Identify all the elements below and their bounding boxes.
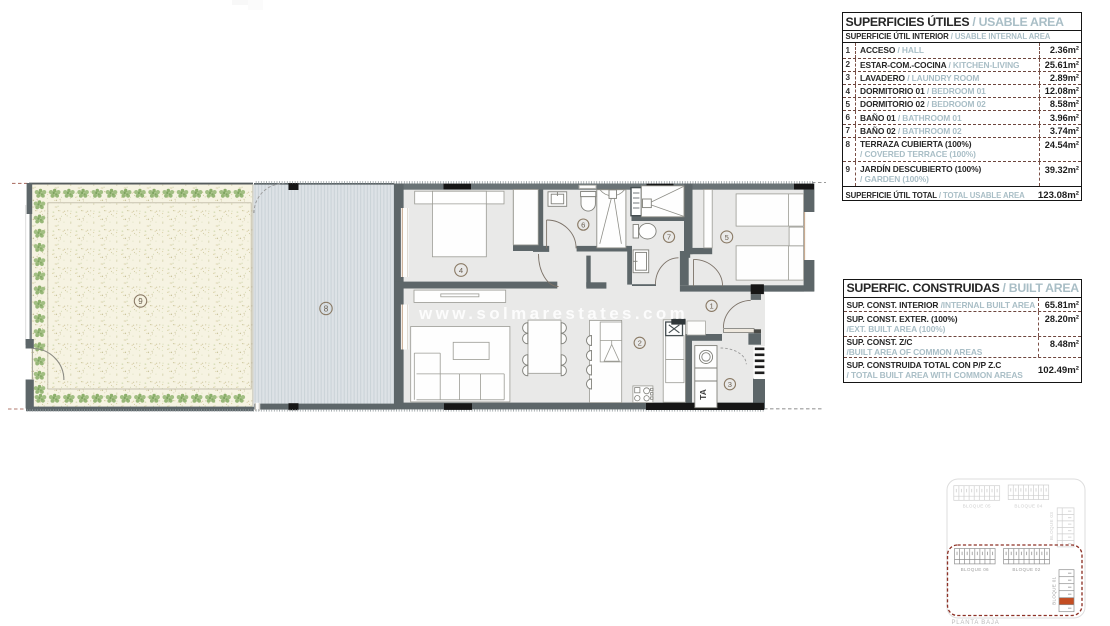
- svg-text:BLOQUE 01: BLOQUE 01: [1052, 576, 1057, 604]
- svg-text:3: 3: [728, 380, 732, 389]
- svg-text:BLOQUE 05: BLOQUE 05: [963, 504, 991, 509]
- svg-text:BLOQUE 03: BLOQUE 03: [1049, 512, 1054, 540]
- svg-text:5: 5: [725, 233, 729, 242]
- svg-text:8: 8: [324, 305, 329, 314]
- svg-text:BLOQUE 04: BLOQUE 04: [1014, 504, 1042, 509]
- svg-text:2: 2: [638, 339, 642, 348]
- svg-text:BLOQUE 06: BLOQUE 06: [961, 567, 989, 572]
- svg-text:7: 7: [667, 233, 671, 242]
- svg-text:1: 1: [709, 302, 713, 311]
- svg-text:6: 6: [581, 220, 585, 229]
- svg-text:www.solmarestates.com: www.solmarestates.com: [418, 304, 688, 323]
- svg-text:TA: TA: [698, 389, 708, 400]
- svg-text:BLOQUE 02: BLOQUE 02: [1012, 567, 1040, 572]
- svg-text:PLANTA BAJA: PLANTA BAJA: [951, 620, 999, 626]
- svg-text:4: 4: [459, 266, 463, 275]
- svg-text:9: 9: [138, 297, 143, 306]
